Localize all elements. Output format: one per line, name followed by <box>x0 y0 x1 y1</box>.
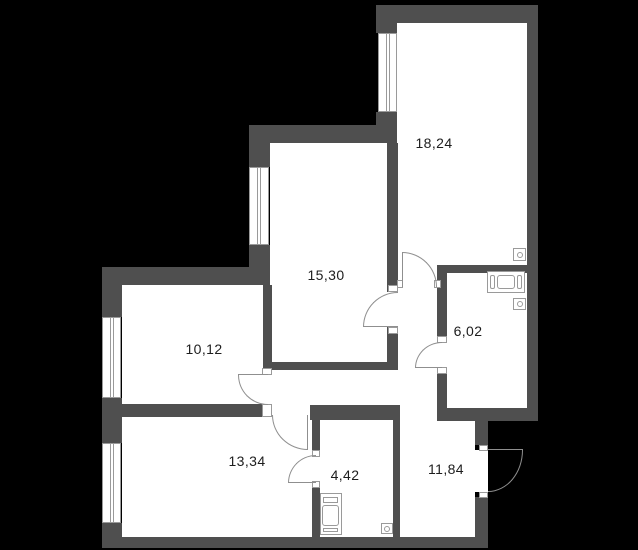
outlet-dot <box>517 301 523 307</box>
room-label-4-42: 4,42 <box>331 467 360 483</box>
room-fill-18-24 <box>397 23 527 287</box>
door-jamb <box>437 367 447 374</box>
door-leaf-10-12 <box>238 374 268 375</box>
window-room-15-30 <box>249 167 269 245</box>
door-jamb <box>262 404 272 417</box>
door-jamb <box>388 327 398 334</box>
wall-10-right <box>263 285 272 375</box>
door-leaf-4-42 <box>288 482 316 483</box>
room-label-15-30: 15,30 <box>307 267 344 283</box>
wall-right <box>527 5 538 421</box>
window-pane <box>110 318 114 397</box>
floor-plan: 18,24 15,30 10,12 6,02 13,34 4,42 11,84 <box>0 0 638 550</box>
room-fill-hall-corridor-horizontal <box>272 370 400 407</box>
wall-left-upper <box>102 267 122 317</box>
outlet-icon <box>513 248 526 261</box>
window-pane <box>386 34 390 111</box>
window-room-18-24 <box>378 33 397 112</box>
door-leaf-15-30 <box>363 326 398 327</box>
window-pane <box>257 168 261 244</box>
room-label-6-02: 6,02 <box>454 323 483 339</box>
bathtub-basin <box>497 275 515 289</box>
wall-10-top <box>102 267 268 285</box>
window-room-13-34 <box>102 443 121 523</box>
outlet-dot <box>384 526 390 532</box>
window-pane <box>110 444 114 522</box>
door-leaf-18-24 <box>402 252 403 287</box>
bathtub-end <box>490 275 495 289</box>
room-label-13-34: 13,34 <box>228 453 265 469</box>
wall-15-right-upper <box>387 143 398 292</box>
wall-top <box>376 5 538 23</box>
door-jamb <box>479 492 488 498</box>
wall-15-left-upper <box>249 125 270 167</box>
washer-panel <box>323 497 338 503</box>
wall-hall-right-upper <box>475 420 488 445</box>
wall-4-top <box>310 405 400 420</box>
wall-left-middle <box>102 398 122 443</box>
doorway-entry <box>475 450 488 492</box>
washing-machine-icon <box>320 493 342 535</box>
washer-drum <box>322 505 339 526</box>
wall-4-left-lower <box>312 483 320 537</box>
room-fill-6-02 <box>447 273 527 408</box>
bathtub-end <box>517 275 522 289</box>
room-label-10-12: 10,12 <box>185 341 222 357</box>
room-fill-hall-11-84 <box>400 420 475 537</box>
outlet-dot <box>517 252 523 258</box>
wall-divider-10-13 <box>120 404 268 417</box>
wall-15-bottom <box>263 362 398 370</box>
outlet-icon <box>381 523 393 534</box>
outlet-icon <box>513 298 526 310</box>
wall-4-right <box>393 420 400 537</box>
door-leaf-6-02 <box>415 367 442 368</box>
door-jamb <box>479 445 488 451</box>
door-leaf-entry <box>488 449 523 450</box>
wall-hall-right-lower <box>475 497 488 537</box>
door-jamb <box>388 285 398 292</box>
door-leaf-13-34 <box>307 415 308 450</box>
wall-15-top <box>249 125 397 143</box>
bathtub-icon <box>487 271 525 293</box>
wall-6-left-upper <box>437 265 447 342</box>
wall-18-left-corner <box>376 5 397 33</box>
wall-bottom <box>102 537 488 548</box>
room-label-11-84: 11,84 <box>428 461 464 477</box>
room-fill-15-30 <box>270 143 387 362</box>
door-arc-entry <box>488 450 523 492</box>
window-room-10-12 <box>102 317 121 398</box>
washer-panel <box>323 528 338 532</box>
room-label-18-24: 18,24 <box>415 135 452 151</box>
